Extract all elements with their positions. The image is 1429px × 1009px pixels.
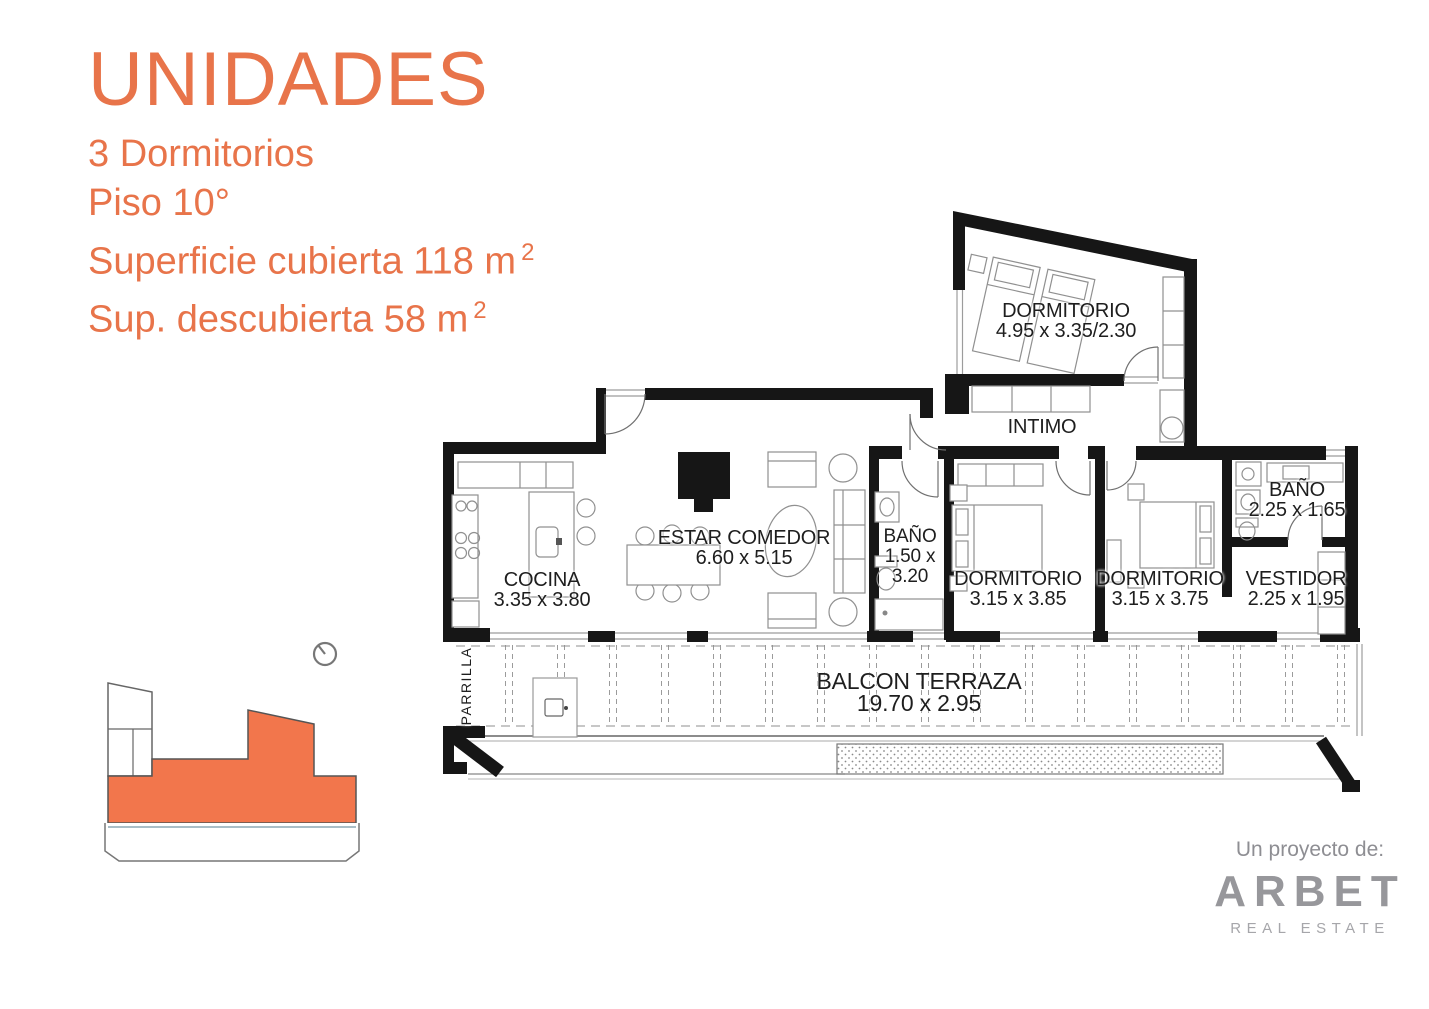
developer-logo: Un proyecto de: ARBET REAL ESTATE	[1198, 838, 1422, 937]
room-label-parrilla: PARRILLA	[456, 647, 476, 726]
logo-tagline: Un proyecto de:	[1198, 838, 1422, 862]
logo-brand: ARBET	[1198, 867, 1422, 917]
room-label-intimo: INTIMO	[1008, 417, 1077, 437]
room-label-dormitorio-2: DORMITORIO 3.15 x 3.85	[954, 569, 1082, 609]
room-label-estar-comedor: ESTAR COMEDOR 6.60 x 5.15	[658, 528, 831, 568]
clock-dial-icon	[314, 643, 336, 665]
room-label-bano-1: BAÑO 1.50 x 3.20	[883, 527, 936, 587]
room-label-dormitorio-principal: DORMITORIO 4.95 x 3.35/2.30	[996, 301, 1136, 341]
room-label-bano-2: BAÑO 2.25 x 1.65	[1249, 480, 1346, 520]
room-label-cocina: COCINA 3.35 x 3.80	[494, 570, 591, 610]
room-label-balcon-terraza: BALCON TERRAZA 19.70 x 2.95	[816, 670, 1021, 714]
key-plan	[105, 643, 359, 861]
logo-subtitle: REAL ESTATE	[1198, 920, 1422, 937]
room-label-vestidor: VESTIDOR 2.25 x 1.95	[1246, 569, 1347, 609]
unit-sheet-page: { "page": {"background": "#ffffff"}, "he…	[0, 0, 1429, 1009]
room-label-dormitorio-3: DORMITORIO 3.15 x 3.75	[1096, 569, 1224, 609]
